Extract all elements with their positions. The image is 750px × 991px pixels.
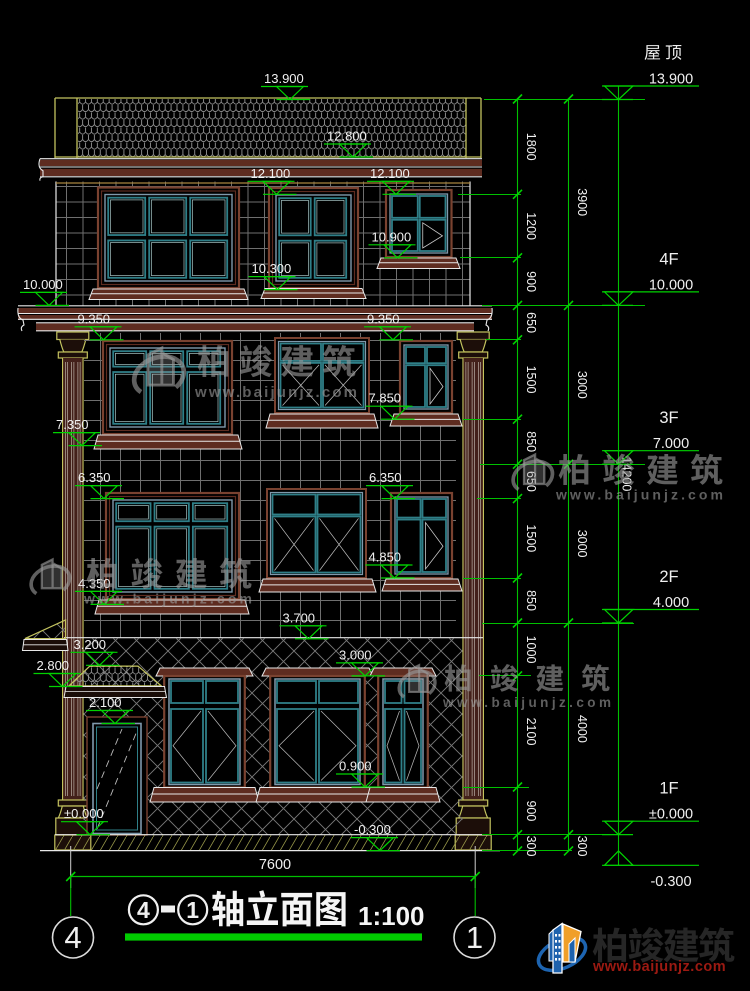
svg-text:6.350: 6.350 [369,470,402,485]
svg-text:7.850: 7.850 [369,391,402,406]
svg-text:3F: 3F [659,409,678,427]
svg-text:13.900: 13.900 [264,71,304,86]
svg-text:1500: 1500 [524,366,538,394]
svg-text:3900: 3900 [575,188,589,216]
svg-text:6.350: 6.350 [78,470,111,485]
svg-text:3000: 3000 [575,371,589,399]
svg-text:900: 900 [524,271,538,292]
svg-text:7.000: 7.000 [653,436,689,452]
svg-text:300: 300 [524,836,538,857]
svg-text:4: 4 [137,897,150,923]
svg-text:0.900: 0.900 [339,759,372,774]
svg-text:1500: 1500 [524,524,538,552]
svg-text:-0.300: -0.300 [650,874,691,890]
svg-text:1: 1 [466,920,483,955]
svg-text:850: 850 [524,590,538,611]
svg-text:4.850: 4.850 [369,550,402,565]
svg-text:4: 4 [64,920,81,955]
svg-text:2F: 2F [659,568,678,586]
svg-text:7600: 7600 [259,857,291,873]
svg-text:3.200: 3.200 [74,637,107,652]
svg-text:10.900: 10.900 [372,229,412,244]
svg-text:-0.300: -0.300 [354,822,391,837]
svg-text:12.100: 12.100 [251,166,291,181]
svg-text:1F: 1F [659,780,678,798]
svg-text:13.900: 13.900 [649,72,693,88]
svg-text:1: 1 [186,897,199,923]
svg-text:1200: 1200 [524,212,538,240]
svg-text:4000: 4000 [575,715,589,743]
svg-text:12.100: 12.100 [370,166,410,181]
svg-text:12.800: 12.800 [327,129,367,144]
svg-text:±0.000: ±0.000 [649,807,693,823]
svg-text:2.800: 2.800 [37,658,70,673]
svg-text:3.000: 3.000 [339,647,372,662]
svg-text:850: 850 [524,431,538,452]
svg-text:7.350: 7.350 [56,417,89,432]
svg-text:±0.000: ±0.000 [64,806,104,821]
svg-text:300: 300 [575,836,589,857]
svg-text:3.700: 3.700 [283,610,316,625]
svg-text:900: 900 [524,800,538,821]
svg-text:10.000: 10.000 [649,277,693,293]
svg-text:1:100: 1:100 [358,901,425,931]
svg-text:4.000: 4.000 [653,595,689,611]
svg-text:www.baijunjz.com: www.baijunjz.com [592,959,726,975]
svg-text:2100: 2100 [524,718,538,746]
svg-text:1000: 1000 [524,636,538,664]
svg-text:2.100: 2.100 [89,695,122,710]
svg-text:1800: 1800 [524,133,538,161]
svg-text:9.350: 9.350 [367,311,400,326]
svg-text:3000: 3000 [575,530,589,558]
svg-text:10.000: 10.000 [23,277,63,292]
svg-text:4F: 4F [659,250,678,268]
svg-text:9.350: 9.350 [78,311,111,326]
svg-text:10.300: 10.300 [252,261,292,276]
svg-text:650: 650 [524,312,538,333]
